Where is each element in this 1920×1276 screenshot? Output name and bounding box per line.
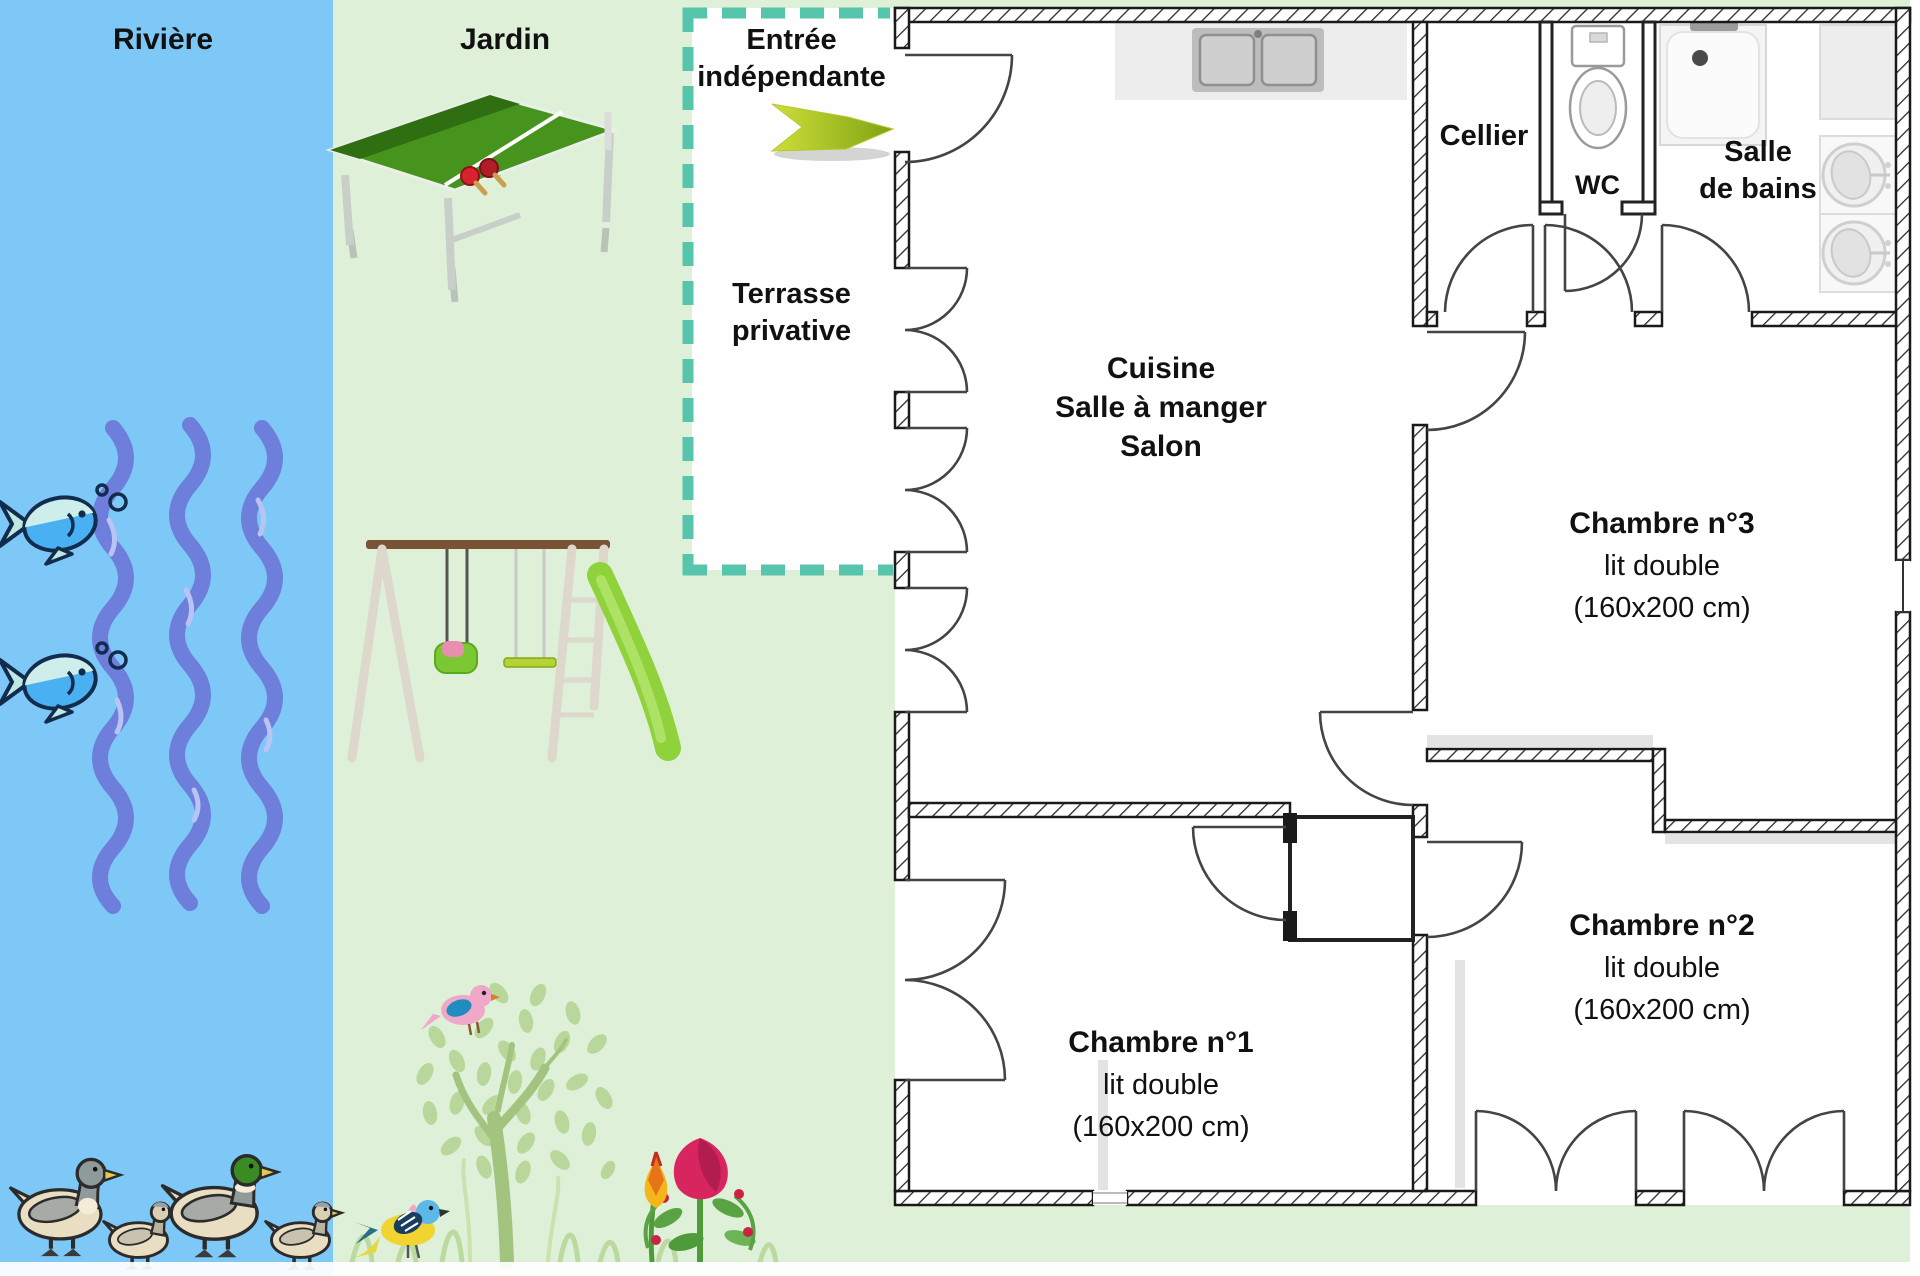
shower-icon: [1660, 8, 1766, 146]
bottom-watermark-strip: [0, 1262, 1920, 1276]
threshold-gap: [1093, 1191, 1127, 1205]
entrance-arrow-icon: [772, 104, 893, 161]
garden-label: Jardin: [405, 20, 605, 59]
wc-label: WC: [1552, 168, 1643, 202]
tree-icon: [413, 979, 618, 1262]
floor-plan-scene: Rivière Jardin Entrée indépendante Terra…: [0, 0, 1920, 1276]
window-break: [1896, 560, 1910, 612]
bathroom-label: Salle de bains: [1655, 134, 1861, 208]
bedroom1-label: Chambre n°1 lit double (160x200 cm): [951, 1022, 1371, 1148]
ping-pong-table-icon: [330, 95, 615, 302]
bathroom-cabinet-icon: [1820, 25, 1896, 119]
living-room-label: Cuisine Salle à manger Salon: [959, 349, 1363, 466]
flowers-icon: [645, 1138, 758, 1262]
duckling-icon: [266, 1202, 342, 1269]
duck-female-icon: [11, 1159, 121, 1256]
bedroom3-label: Chambre n°3 lit double (160x200 cm): [1452, 503, 1872, 629]
toilet-icon: [1570, 26, 1626, 148]
duck-mallard-icon: [163, 1156, 278, 1257]
duckling-icon: [104, 1202, 180, 1269]
cellar-label: Cellier: [1427, 118, 1541, 155]
vestibule-walls: [1283, 813, 1413, 941]
independent-entrance-label: Entrée indépendante: [690, 22, 893, 96]
bedroom2-label: Chambre n°2 lit double (160x200 cm): [1452, 905, 1872, 1031]
kitchen-counter-icon: [1115, 22, 1407, 100]
private-terrace-label: Terrasse privative: [690, 276, 893, 350]
river-label: Rivière: [63, 20, 263, 59]
swing-set-icon: [352, 540, 668, 758]
